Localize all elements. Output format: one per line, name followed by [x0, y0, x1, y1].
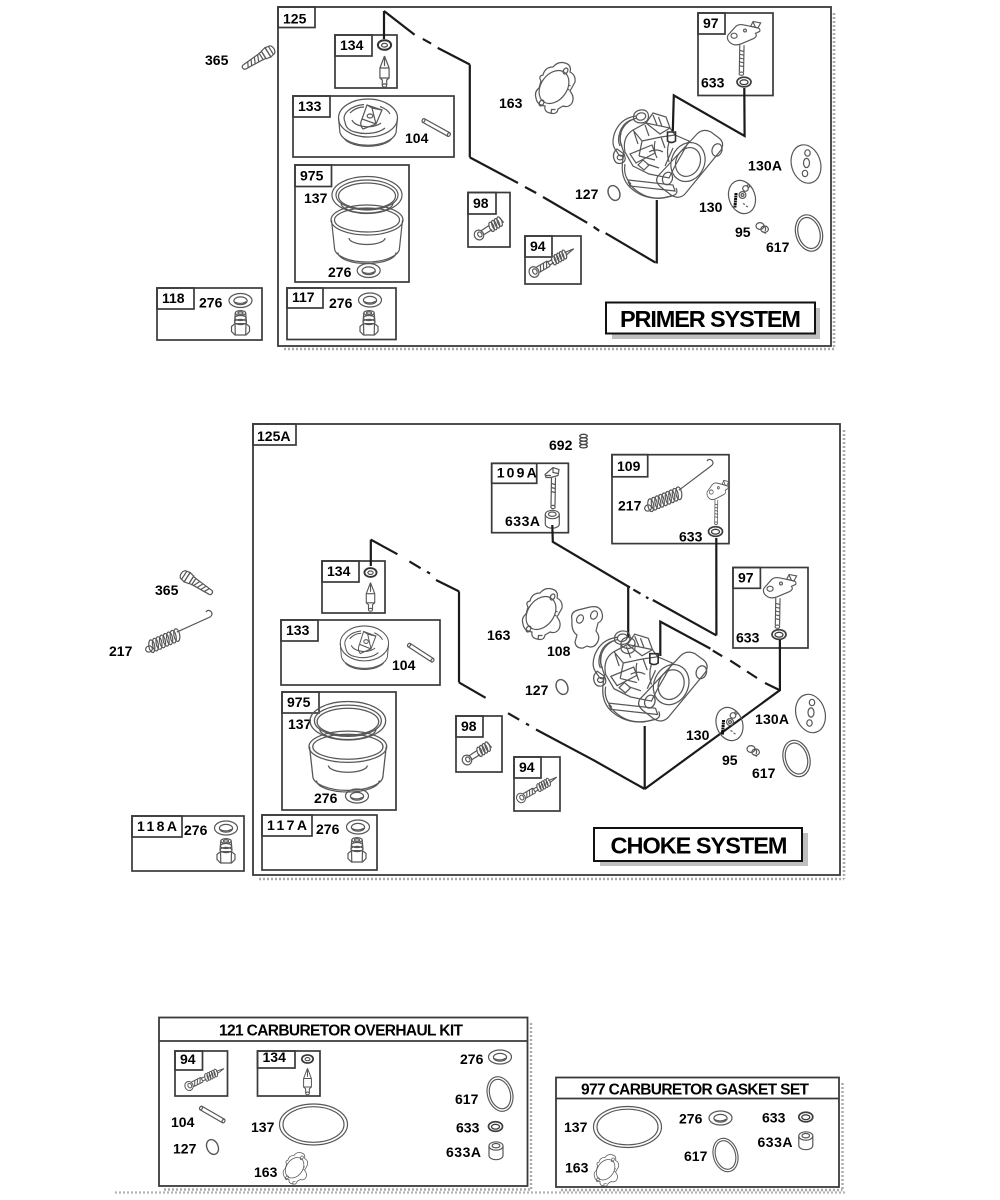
svg-text:127: 127 [525, 682, 549, 698]
svg-text:134: 134 [340, 37, 364, 53]
svg-text:130: 130 [686, 727, 710, 743]
svg-text:633A: 633A [446, 1144, 481, 1160]
svg-text:121 CARBURETOR OVERHAUL KIT: 121 CARBURETOR OVERHAUL KIT [219, 1023, 464, 1040]
svg-text:276: 276 [679, 1111, 703, 1127]
svg-text:130A: 130A [748, 158, 782, 174]
svg-text:CHOKE SYSTEM: CHOKE SYSTEM [611, 833, 788, 859]
svg-text:365: 365 [205, 52, 229, 68]
svg-text:137: 137 [304, 190, 328, 206]
svg-text:163: 163 [499, 95, 523, 111]
svg-text:109: 109 [617, 458, 641, 474]
svg-text:134: 134 [327, 563, 351, 579]
svg-text:97: 97 [703, 15, 719, 31]
svg-text:104: 104 [405, 130, 429, 146]
svg-text:276: 276 [184, 822, 208, 838]
svg-text:127: 127 [575, 186, 599, 202]
svg-text:97: 97 [738, 569, 754, 585]
svg-text:977 CARBURETOR GASKET SET: 977 CARBURETOR GASKET SET [581, 1082, 810, 1099]
svg-text:217: 217 [109, 643, 133, 659]
svg-text:137: 137 [564, 1119, 588, 1135]
svg-text:617: 617 [684, 1148, 708, 1164]
svg-text:163: 163 [487, 627, 511, 643]
svg-text:104: 104 [171, 1114, 195, 1130]
svg-text:127: 127 [173, 1141, 197, 1157]
svg-text:692: 692 [549, 437, 573, 453]
svg-text:108: 108 [547, 643, 571, 659]
svg-text:94: 94 [530, 238, 546, 254]
svg-text:134: 134 [263, 1049, 287, 1065]
svg-text:633: 633 [762, 1110, 786, 1126]
svg-text:975: 975 [287, 694, 311, 710]
svg-text:130A: 130A [755, 711, 789, 727]
svg-text:633: 633 [679, 529, 703, 545]
svg-text:365: 365 [155, 582, 179, 598]
svg-text:94: 94 [519, 759, 535, 775]
svg-text:98: 98 [461, 718, 477, 734]
svg-text:94: 94 [180, 1051, 196, 1067]
svg-text:117: 117 [292, 289, 315, 305]
svg-text:137: 137 [251, 1119, 275, 1135]
svg-text:276: 276 [460, 1051, 484, 1067]
svg-text:276: 276 [329, 295, 353, 311]
svg-text:276: 276 [314, 790, 338, 806]
svg-text:133: 133 [298, 98, 322, 114]
svg-text:633A: 633A [758, 1134, 793, 1150]
svg-text:95: 95 [722, 752, 738, 768]
svg-text:125: 125 [283, 11, 307, 27]
svg-text:276: 276 [199, 295, 223, 311]
svg-text:617: 617 [455, 1091, 479, 1107]
svg-text:633: 633 [456, 1120, 480, 1136]
svg-text:125A: 125A [257, 428, 290, 444]
svg-text:617: 617 [752, 765, 776, 781]
svg-text:118: 118 [162, 290, 185, 306]
svg-text:276: 276 [316, 821, 340, 837]
svg-text:217: 217 [618, 498, 642, 514]
svg-text:163: 163 [254, 1164, 278, 1180]
svg-text:617: 617 [766, 239, 790, 255]
svg-text:975: 975 [300, 168, 324, 184]
svg-text:163: 163 [565, 1160, 589, 1176]
svg-text:137: 137 [288, 716, 312, 732]
svg-text:633: 633 [701, 75, 725, 91]
svg-text:633A: 633A [505, 513, 540, 529]
svg-text:95: 95 [735, 224, 751, 240]
svg-text:276: 276 [328, 264, 352, 280]
svg-text:130: 130 [699, 199, 723, 215]
svg-text:633: 633 [736, 630, 760, 646]
svg-text:PRIMER SYSTEM: PRIMER SYSTEM [620, 306, 801, 332]
svg-text:104: 104 [392, 657, 416, 673]
svg-text:98: 98 [473, 195, 489, 211]
svg-text:118A: 118A [137, 818, 177, 834]
svg-text:133: 133 [286, 622, 310, 638]
svg-text:117A: 117A [267, 817, 307, 833]
svg-text:109A: 109A [497, 464, 537, 480]
